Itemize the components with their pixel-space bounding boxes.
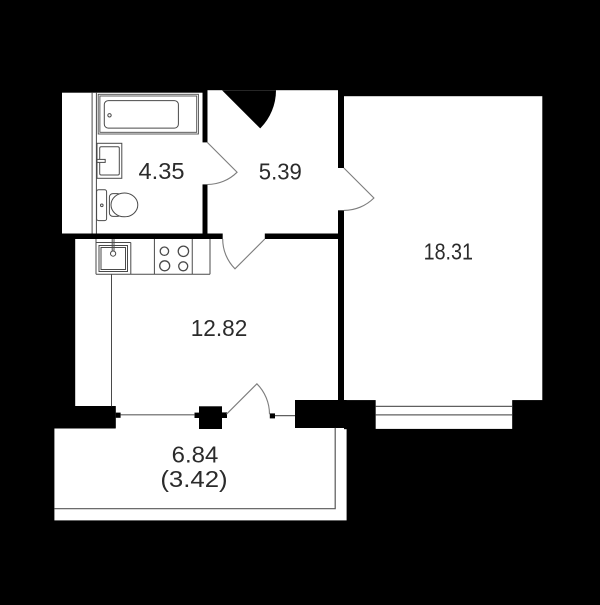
svg-text:4.35: 4.35 bbox=[139, 158, 185, 184]
svg-text:5.39: 5.39 bbox=[259, 159, 302, 185]
svg-text:12.82: 12.82 bbox=[191, 315, 248, 341]
svg-text:(3.42): (3.42) bbox=[160, 466, 227, 492]
svg-text:18.31: 18.31 bbox=[424, 239, 473, 265]
svg-text:6.84: 6.84 bbox=[172, 442, 219, 468]
